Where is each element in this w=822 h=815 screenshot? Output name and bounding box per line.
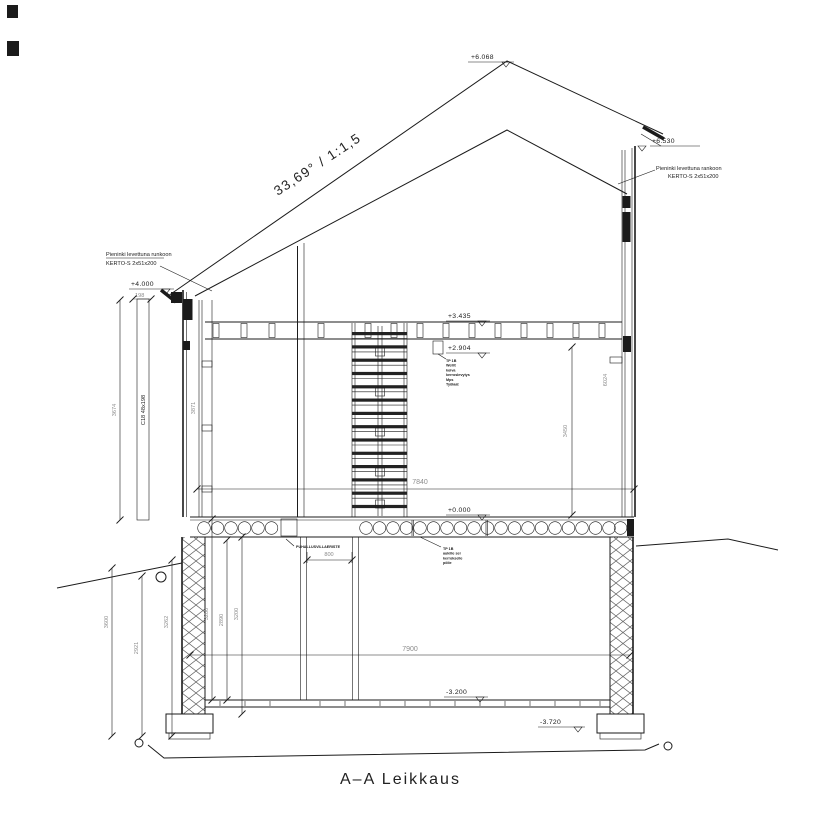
level-marker-icon — [478, 353, 486, 358]
slab-note-line: TP 1B — [443, 547, 454, 551]
kerto-right-line1: Pieninki levettuna rankoon — [656, 166, 722, 172]
hollow-core-slab — [190, 517, 634, 537]
level-wall-top-left: +4.000 198 — [129, 281, 174, 303]
joist-blocks — [213, 324, 605, 338]
corner-mark — [7, 5, 18, 18]
dim-3871: 3871 — [191, 402, 197, 414]
dim-800-label: 800 — [324, 552, 333, 558]
terrain-marker-icon — [135, 739, 143, 747]
dim-7900-label: 7900 — [402, 646, 418, 653]
dim-3600-label: 3600 — [104, 616, 110, 628]
dim-7840: 7840 — [194, 479, 638, 493]
terrain-marker-icon — [156, 572, 166, 582]
level-ceiling-bottom: +2.904 — [446, 345, 490, 358]
level-eave-right: +6.530 — [638, 138, 700, 151]
level-marker-icon — [574, 727, 582, 732]
slab-note-line: pölie — [443, 561, 452, 565]
slab-note-line: aukille sei — [443, 552, 461, 556]
kerto-right-line2: KERTO-S 2x51x200 — [668, 174, 718, 180]
dim-3674: 3674 — [112, 404, 118, 416]
dim-3200-label: 3200 — [234, 608, 240, 620]
stair-treads — [352, 332, 407, 508]
roof-slope-label: 33,69° / 1:1,5 — [271, 130, 364, 199]
floor-note-line: TP 1B — [446, 359, 457, 363]
level-eave-right-label: +6.530 — [652, 138, 675, 145]
level-footing-label: -3.720 — [540, 719, 561, 726]
corner-mark — [7, 41, 19, 56]
insulation-note: PUHALLUSVILLAERISTE 800 — [286, 539, 356, 564]
right-wall: 6024 — [603, 146, 635, 517]
floor-note-line: Mps — [446, 378, 453, 382]
level-ridge-label: +6.068 — [471, 54, 494, 61]
slab-note-line: kerrokselle — [443, 556, 462, 560]
dim-3262-label: 3262 — [164, 616, 170, 628]
column-label: C18 48x198 — [141, 395, 147, 425]
kerto-note-left: Pieninki levettuna runkoon KERTO-S 2x51x… — [106, 252, 212, 291]
left-wall: 3871 — [171, 290, 212, 517]
dim-7900: 7900 — [187, 646, 634, 659]
stair — [352, 323, 407, 517]
slab-detail-note: TP 1B aukille sei kerrokselle pölie — [420, 537, 462, 565]
floor-note-line: Wellit — [446, 364, 457, 368]
floor-note-line: koiva — [446, 368, 456, 372]
section-drawing-page: 33,69° / 1:1,5 +6.068 +6.530 Pieninki le… — [0, 0, 822, 815]
level-wall-top-left-label: +4.000 — [131, 281, 154, 288]
ceiling-joists — [205, 322, 622, 339]
section-drawing-svg: 33,69° / 1:1,5 +6.068 +6.530 Pieninki le… — [0, 0, 822, 815]
drawing-title: A–A Leikkaus — [340, 771, 461, 788]
dim-7840-label: 7840 — [412, 479, 428, 486]
level-marker-icon — [502, 62, 510, 67]
column-c18: C18 48x198 3674 — [112, 297, 149, 524]
terrain-marker-icon — [664, 742, 672, 750]
level-ceiling-top-label: +3.435 — [448, 313, 471, 320]
footings: -3.720 — [166, 714, 644, 739]
insulation-label: PUHALLUSVILLAERISTE — [296, 545, 341, 549]
dim-2890-label: 2890 — [219, 614, 225, 626]
kerto-left-line1: Pieninki levettuna runkoon — [106, 252, 172, 258]
dim-2921-label: 2921 — [134, 642, 140, 654]
center-wall — [298, 243, 305, 517]
level-ceiling-bottom-label: +2.904 — [448, 345, 471, 352]
level-ceiling-top: +3.435 — [446, 313, 490, 326]
dim-6024: 6024 — [603, 374, 609, 386]
dim-3200-label: 3200 — [204, 608, 210, 620]
kerto-note-right: Pieninki levettuna rankoon KERTO-S 2x51x… — [618, 166, 722, 184]
level-floor-ground-label: +0.000 — [448, 507, 471, 514]
floor-note-line: kerroslevytys — [446, 373, 470, 377]
vertical-dims: 3600 2921 3262 3200 2890 3200 — [104, 516, 246, 740]
dim-3450-label: 3450 — [563, 425, 569, 437]
level-marker-icon — [638, 146, 646, 151]
roof: 33,69° / 1:1,5 — [161, 61, 664, 302]
dim-3450: 3450 — [563, 344, 576, 519]
level-floor-basement-label: -3.200 — [446, 689, 467, 696]
kerto-left-line2: KERTO-S 2x51x200 — [106, 261, 156, 267]
floor-note-line: Työlaat — [446, 383, 459, 387]
basement — [182, 537, 633, 714]
level-floor-ground: +0.000 — [446, 507, 490, 520]
